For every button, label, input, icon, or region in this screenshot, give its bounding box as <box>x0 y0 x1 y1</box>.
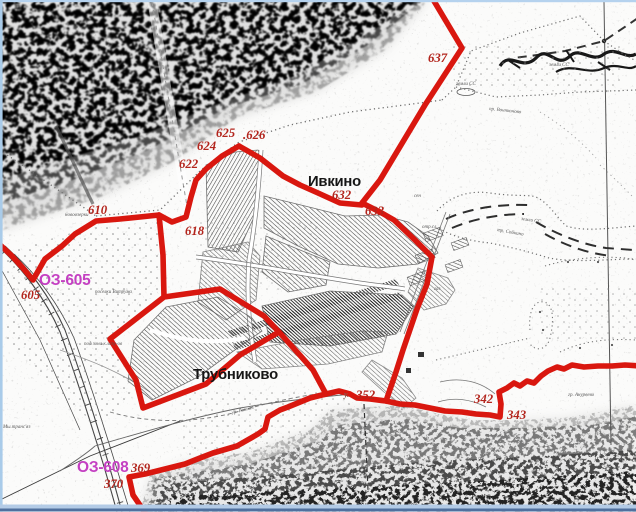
svg-text:622: 622 <box>179 157 199 171</box>
svg-text:343: 343 <box>506 408 527 422</box>
svg-text:сен: сен <box>414 194 421 199</box>
svg-text:610: 610 <box>88 203 108 217</box>
svg-text:633: 633 <box>365 204 385 218</box>
svg-text:под зона к.лазу-ов: под зона к.лазу-ов <box>84 342 123 347</box>
svg-text:земли СС: земли СС <box>548 63 570 68</box>
svg-text:605: 605 <box>21 288 41 302</box>
svg-text:земли СС: земли СС <box>455 82 477 87</box>
svg-text:ОЗ-605: ОЗ-605 <box>39 272 91 289</box>
svg-text:новоозерки: новоозерки <box>65 213 89 218</box>
svg-text:отр.сл.: отр.сл. <box>422 225 438 230</box>
svg-text:352: 352 <box>355 388 376 402</box>
svg-text:618: 618 <box>185 224 205 238</box>
svg-text:Мы.транс'яз: Мы.транс'яз <box>2 425 31 430</box>
svg-text:Ивкино: Ивкино <box>308 174 361 190</box>
svg-text:газ: газ <box>434 287 440 292</box>
svg-text:625: 625 <box>216 126 236 140</box>
svg-text:369: 369 <box>130 461 151 475</box>
svg-text:624: 624 <box>197 139 217 153</box>
svg-text:ОЗ-608: ОЗ-608 <box>77 459 129 476</box>
svg-text:.626: .626 <box>243 128 266 142</box>
svg-text:Трубниково: Трубниково <box>193 367 278 383</box>
svg-text:370: 370 <box>103 477 124 491</box>
svg-text:632: 632 <box>332 188 352 202</box>
svg-text:342: 342 <box>473 392 494 406</box>
svg-text:у.: у. <box>343 390 349 399</box>
svg-text:637: 637 <box>428 51 448 65</box>
svg-text:гр. Ануреево: гр. Ануреево <box>568 393 595 398</box>
svg-text:поселки Витрума: поселки Витрума <box>95 290 132 295</box>
